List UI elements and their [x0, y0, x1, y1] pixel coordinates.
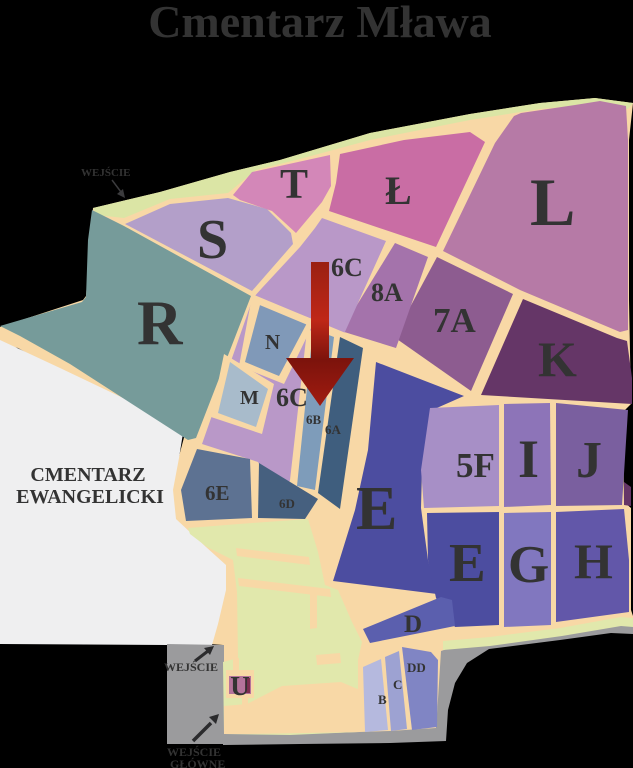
- svg-text:DD: DD: [407, 660, 426, 675]
- svg-text:WEJŚCIE: WEJŚCIE: [81, 167, 131, 179]
- svg-text:H: H: [574, 533, 613, 589]
- svg-text:8A: 8A: [371, 278, 403, 307]
- svg-text:J: J: [576, 432, 602, 489]
- svg-text:S: S: [197, 209, 228, 271]
- svg-text:D: D: [404, 611, 422, 638]
- svg-text:U: U: [230, 671, 250, 701]
- svg-text:6C: 6C: [276, 383, 308, 412]
- svg-text:6C: 6C: [331, 253, 363, 282]
- svg-text:5F: 5F: [456, 446, 495, 485]
- svg-text:6B: 6B: [306, 412, 322, 427]
- svg-text:I: I: [518, 429, 539, 489]
- svg-text:6D: 6D: [279, 496, 295, 511]
- svg-text:B: B: [378, 692, 387, 707]
- svg-text:CMENTARZ: CMENTARZ: [30, 464, 145, 486]
- svg-text:6A: 6A: [325, 422, 342, 437]
- svg-text:Ł: Ł: [385, 168, 412, 213]
- svg-text:6E: 6E: [205, 481, 230, 505]
- svg-text:N: N: [265, 330, 280, 354]
- svg-text:L: L: [530, 164, 575, 240]
- svg-text:EWANGELICKI: EWANGELICKI: [16, 486, 164, 508]
- svg-text:T: T: [280, 162, 308, 208]
- svg-text:WEJŚCIE: WEJŚCIE: [164, 660, 218, 674]
- svg-text:Cmentarz Mława: Cmentarz Mława: [148, 0, 492, 47]
- svg-text:GŁÓWNE: GŁÓWNE: [170, 757, 225, 768]
- svg-text:E: E: [356, 475, 397, 543]
- svg-text:R: R: [137, 288, 184, 358]
- svg-text:7A: 7A: [433, 301, 477, 340]
- svg-text:K: K: [538, 331, 577, 387]
- svg-text:C: C: [393, 677, 402, 692]
- svg-text:G: G: [508, 536, 549, 594]
- svg-text:E: E: [449, 532, 486, 593]
- svg-text:M: M: [240, 387, 259, 409]
